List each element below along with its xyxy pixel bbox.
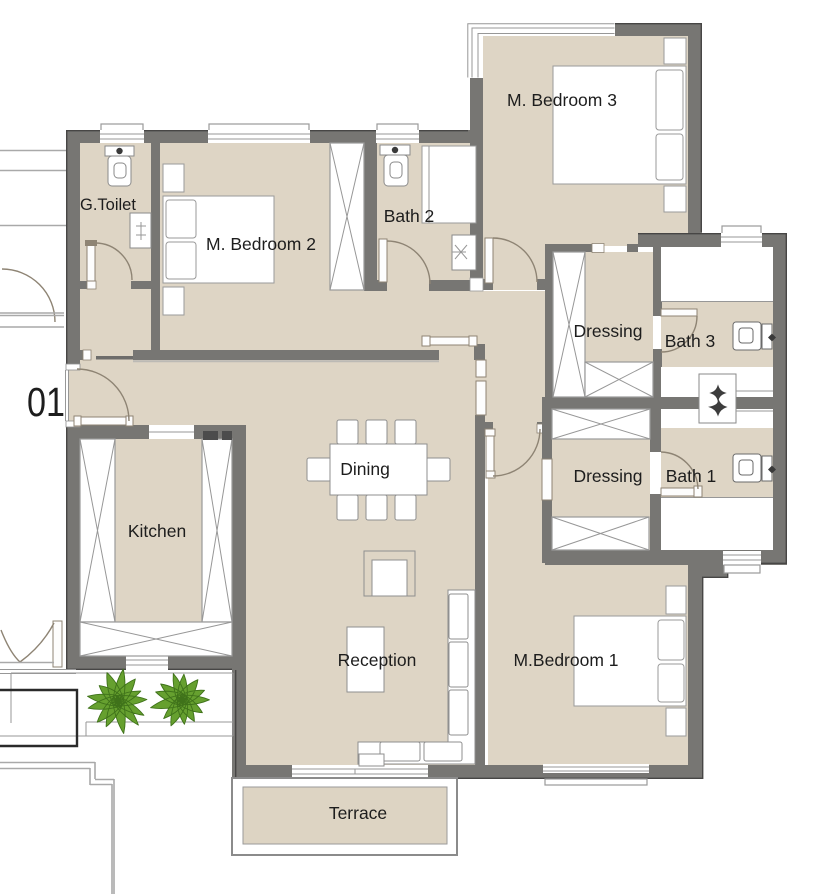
svg-text:Bath 2: Bath 2 bbox=[384, 206, 435, 226]
svg-text:M. Bedroom 3: M. Bedroom 3 bbox=[507, 90, 617, 110]
svg-text:M. Bedroom 2: M. Bedroom 2 bbox=[206, 234, 316, 254]
svg-text:Bath 1: Bath 1 bbox=[666, 466, 717, 486]
svg-text:M.Bedroom 1: M.Bedroom 1 bbox=[513, 650, 618, 670]
svg-text:Dressing: Dressing bbox=[573, 466, 642, 486]
svg-text:Dressing: Dressing bbox=[573, 321, 642, 341]
svg-text:Terrace: Terrace bbox=[329, 803, 387, 823]
svg-text:Kitchen: Kitchen bbox=[128, 521, 186, 541]
svg-text:01: 01 bbox=[27, 379, 65, 425]
svg-text:Reception: Reception bbox=[338, 650, 417, 670]
svg-text:Bath 3: Bath 3 bbox=[665, 331, 716, 351]
svg-text:Dining: Dining bbox=[340, 459, 390, 479]
svg-text:G.Toilet: G.Toilet bbox=[80, 196, 136, 214]
